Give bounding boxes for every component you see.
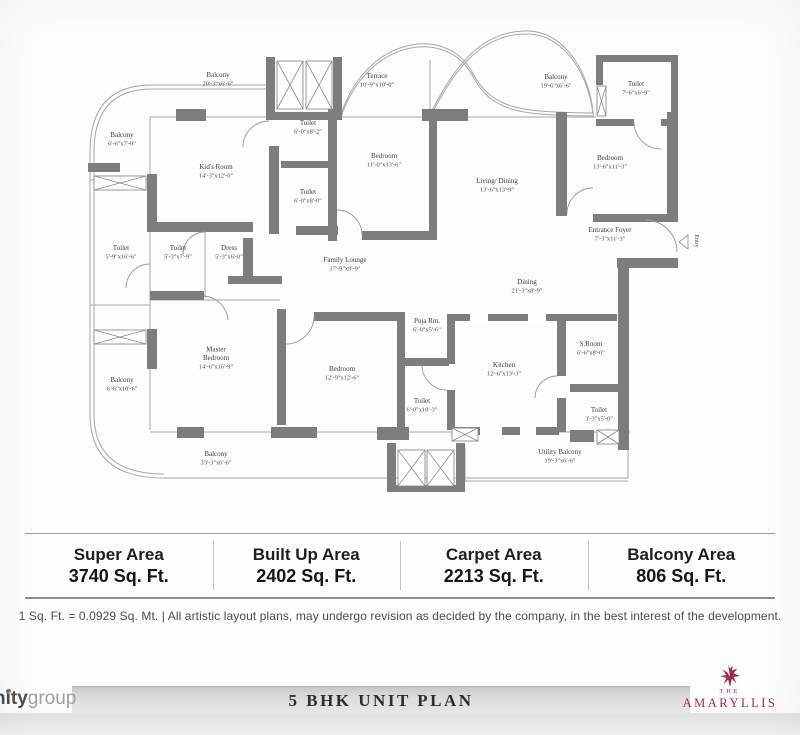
area-builtup: Built Up Area 2402 Sq. Ft. — [213, 534, 401, 597]
room-label: Kitchen12'-6"x13'-3" — [487, 361, 522, 378]
area-value: 806 Sq. Ft. — [588, 565, 776, 588]
amaryllis-logo: THE AMARYLLIS — [672, 664, 788, 711]
room-label: Entry — [693, 234, 699, 247]
room-label: Toilet7'-6"x6'-9" — [622, 80, 650, 97]
amaryllis-the-text: THE — [672, 689, 788, 695]
title-bar: 5 BHK UNIT PLAN — [72, 686, 690, 714]
room-label: Toilet5'-3"x7'-9" — [164, 244, 192, 261]
disclaimer-text: 1 Sq. Ft. = 0.0929 Sq. Mt. | All artisti… — [0, 609, 800, 623]
room-label: Balcony20'-3"x6'-6" — [203, 71, 234, 88]
amaryllis-flower-icon — [719, 664, 741, 688]
unity-group-logo: nitygroup — [0, 688, 76, 710]
unity-logo-color-dot-icon — [6, 689, 11, 694]
room-label: MasterBedroom14'-6"x16'-9" — [199, 346, 234, 371]
area-label: Built Up Area — [213, 544, 401, 565]
room-label: Balcony6'-6"x7'-0" — [108, 131, 136, 148]
unity-logo-light: group — [28, 688, 77, 709]
room-label: Dining21'-3"x8'-9" — [512, 278, 543, 295]
room-label: Bedroom11'-0"x13'-6" — [367, 152, 401, 169]
area-value: 2402 Sq. Ft. — [213, 565, 401, 588]
area-super: Super Area 3740 Sq. Ft. — [25, 534, 213, 597]
room-label: Utility Balcony19'-3"x6'-6" — [538, 448, 582, 465]
room-label: Bedroom13'-6"x11'-3" — [593, 154, 627, 171]
room-label: Balcony33'-3"x6'-6" — [201, 450, 232, 467]
room-label: S.Room6'-6"x8'-0" — [577, 340, 605, 357]
room-label: Living/ Dining13'-6"x13'-9" — [476, 177, 518, 194]
plan-title: 5 BHK UNIT PLAN — [288, 691, 473, 711]
amaryllis-name-text: AMARYLLIS — [672, 696, 788, 711]
unity-logo-bold: nity — [0, 688, 28, 709]
room-label: Toilet3'-3"x5'-0" — [585, 406, 613, 423]
room-label: Toilet6'-0"x8'-0" — [294, 188, 322, 205]
area-value: 3740 Sq. Ft. — [25, 565, 213, 588]
area-summary-strip: Super Area 3740 Sq. Ft. Built Up Area 24… — [25, 533, 775, 599]
area-value: 2213 Sq. Ft. — [400, 565, 588, 588]
room-label: Entrance Foyer7'-3"x11'-3" — [589, 226, 633, 243]
plan-walls-layer — [88, 55, 678, 492]
room-label: Bedroom12'-9"x12'-6" — [325, 365, 360, 382]
room-label: Puja Rm.6'-0"x5'-6" — [413, 317, 441, 334]
footer-shade — [0, 713, 800, 735]
area-label: Super Area — [25, 544, 213, 565]
floor-plan: Balcony20'-3"x6'-6"Terrace10'-9"x10'-0"B… — [0, 0, 800, 528]
room-label: Dress5'-3"x6'-0" — [215, 244, 243, 261]
room-label: Kid's Room14'-3"x12'-0" — [199, 163, 234, 180]
unit-plan-page: Balcony20'-3"x6'-6"Terrace10'-9"x10'-0"B… — [0, 0, 800, 735]
room-label: Family Lounge17'-9"x9'-9" — [324, 256, 367, 273]
room-label: Toilet5'-9"x16'-6" — [106, 244, 137, 261]
plan-windows-layer — [94, 61, 619, 486]
area-label: Carpet Area — [400, 544, 588, 565]
room-label: Balcony6'-6"x10'-6" — [107, 376, 138, 393]
area-label: Balcony Area — [588, 544, 776, 565]
room-label: Balcony19'-6"x6'-6" — [541, 73, 572, 90]
room-label: Toilet6'-0"x8'-2" — [294, 119, 322, 136]
area-carpet: Carpet Area 2213 Sq. Ft. — [400, 534, 588, 597]
area-balcony: Balcony Area 806 Sq. Ft. — [588, 534, 776, 597]
room-label: Toilet6'-0"x10'-3" — [407, 397, 438, 414]
